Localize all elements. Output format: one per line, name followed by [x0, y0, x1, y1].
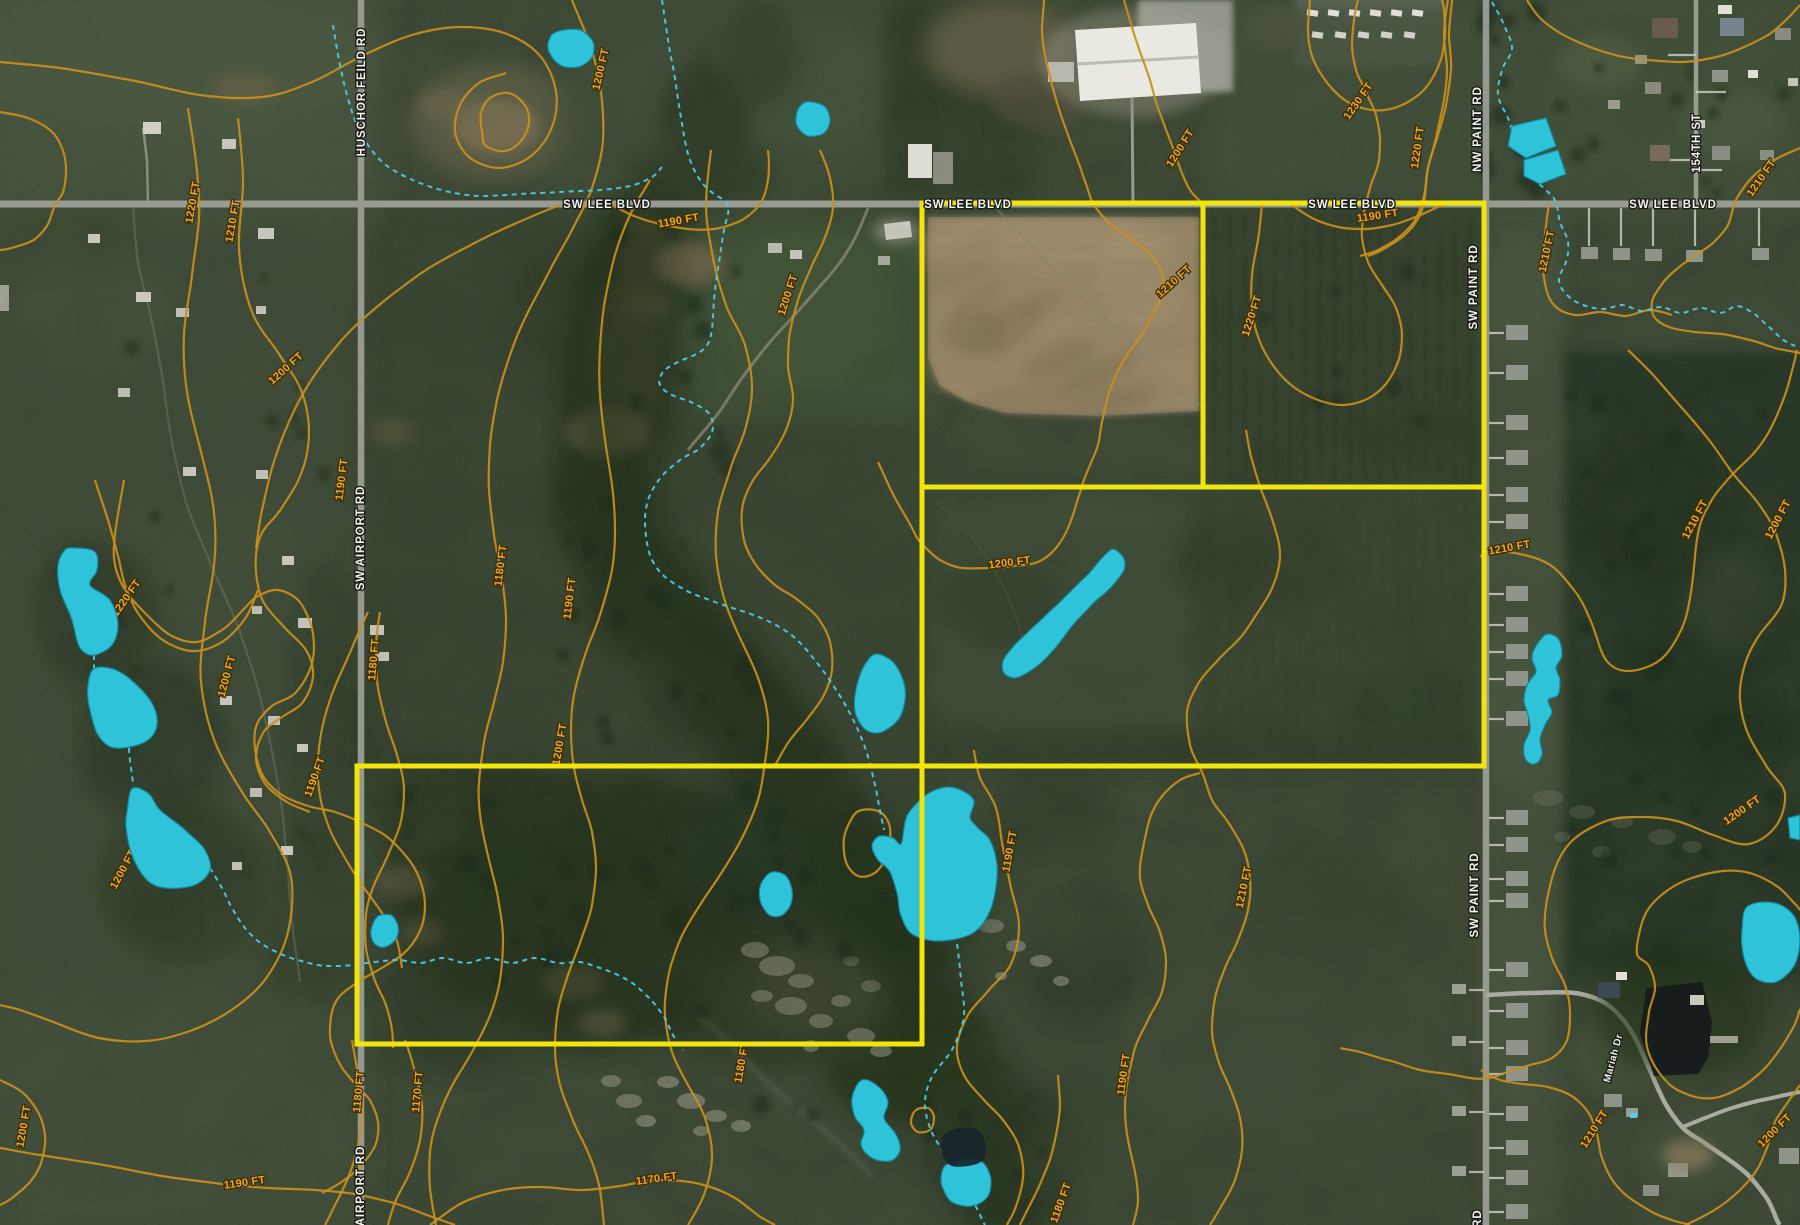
svg-text:SW LEE BLVD: SW LEE BLVD	[1629, 199, 1717, 211]
svg-text:NW PAINT RD: NW PAINT RD	[1472, 86, 1484, 172]
svg-text:SW PAINT RD: SW PAINT RD	[1472, 1209, 1484, 1225]
svg-text:SW LEE BLVD: SW LEE BLVD	[563, 199, 651, 211]
svg-text:SW AIRPORT RD: SW AIRPORT RD	[355, 1146, 367, 1225]
svg-text:SW PAINT RD: SW PAINT RD	[1469, 852, 1481, 937]
svg-text:SW PAINT RD: SW PAINT RD	[1468, 244, 1480, 329]
svg-text:154TH ST: 154TH ST	[1691, 113, 1703, 173]
svg-text:SW LEE BLVD: SW LEE BLVD	[1308, 199, 1396, 211]
svg-text:HUSCHOR FEILD RD: HUSCHOR FEILD RD	[356, 28, 368, 157]
svg-text:SW AIRPORT RD: SW AIRPORT RD	[355, 486, 367, 591]
svg-text:SW LEE BLVD: SW LEE BLVD	[924, 199, 1012, 211]
